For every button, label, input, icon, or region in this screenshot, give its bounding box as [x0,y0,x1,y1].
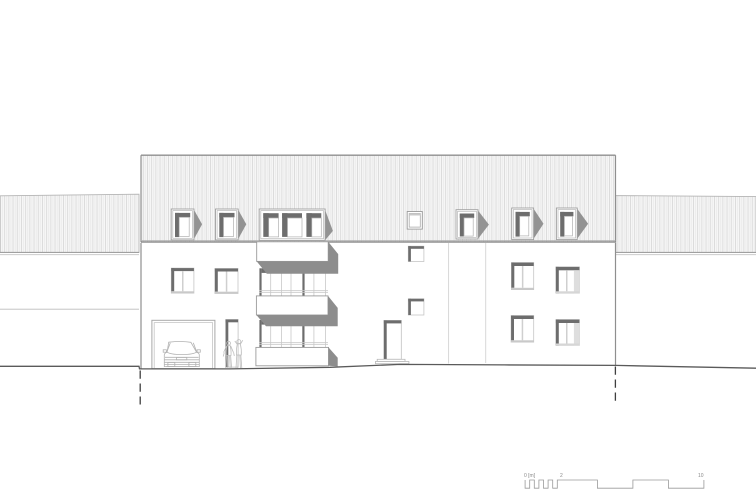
svg-text:2: 2 [560,473,563,479]
svg-text:0 [m]: 0 [m] [524,473,536,479]
svg-text:10: 10 [698,473,704,479]
